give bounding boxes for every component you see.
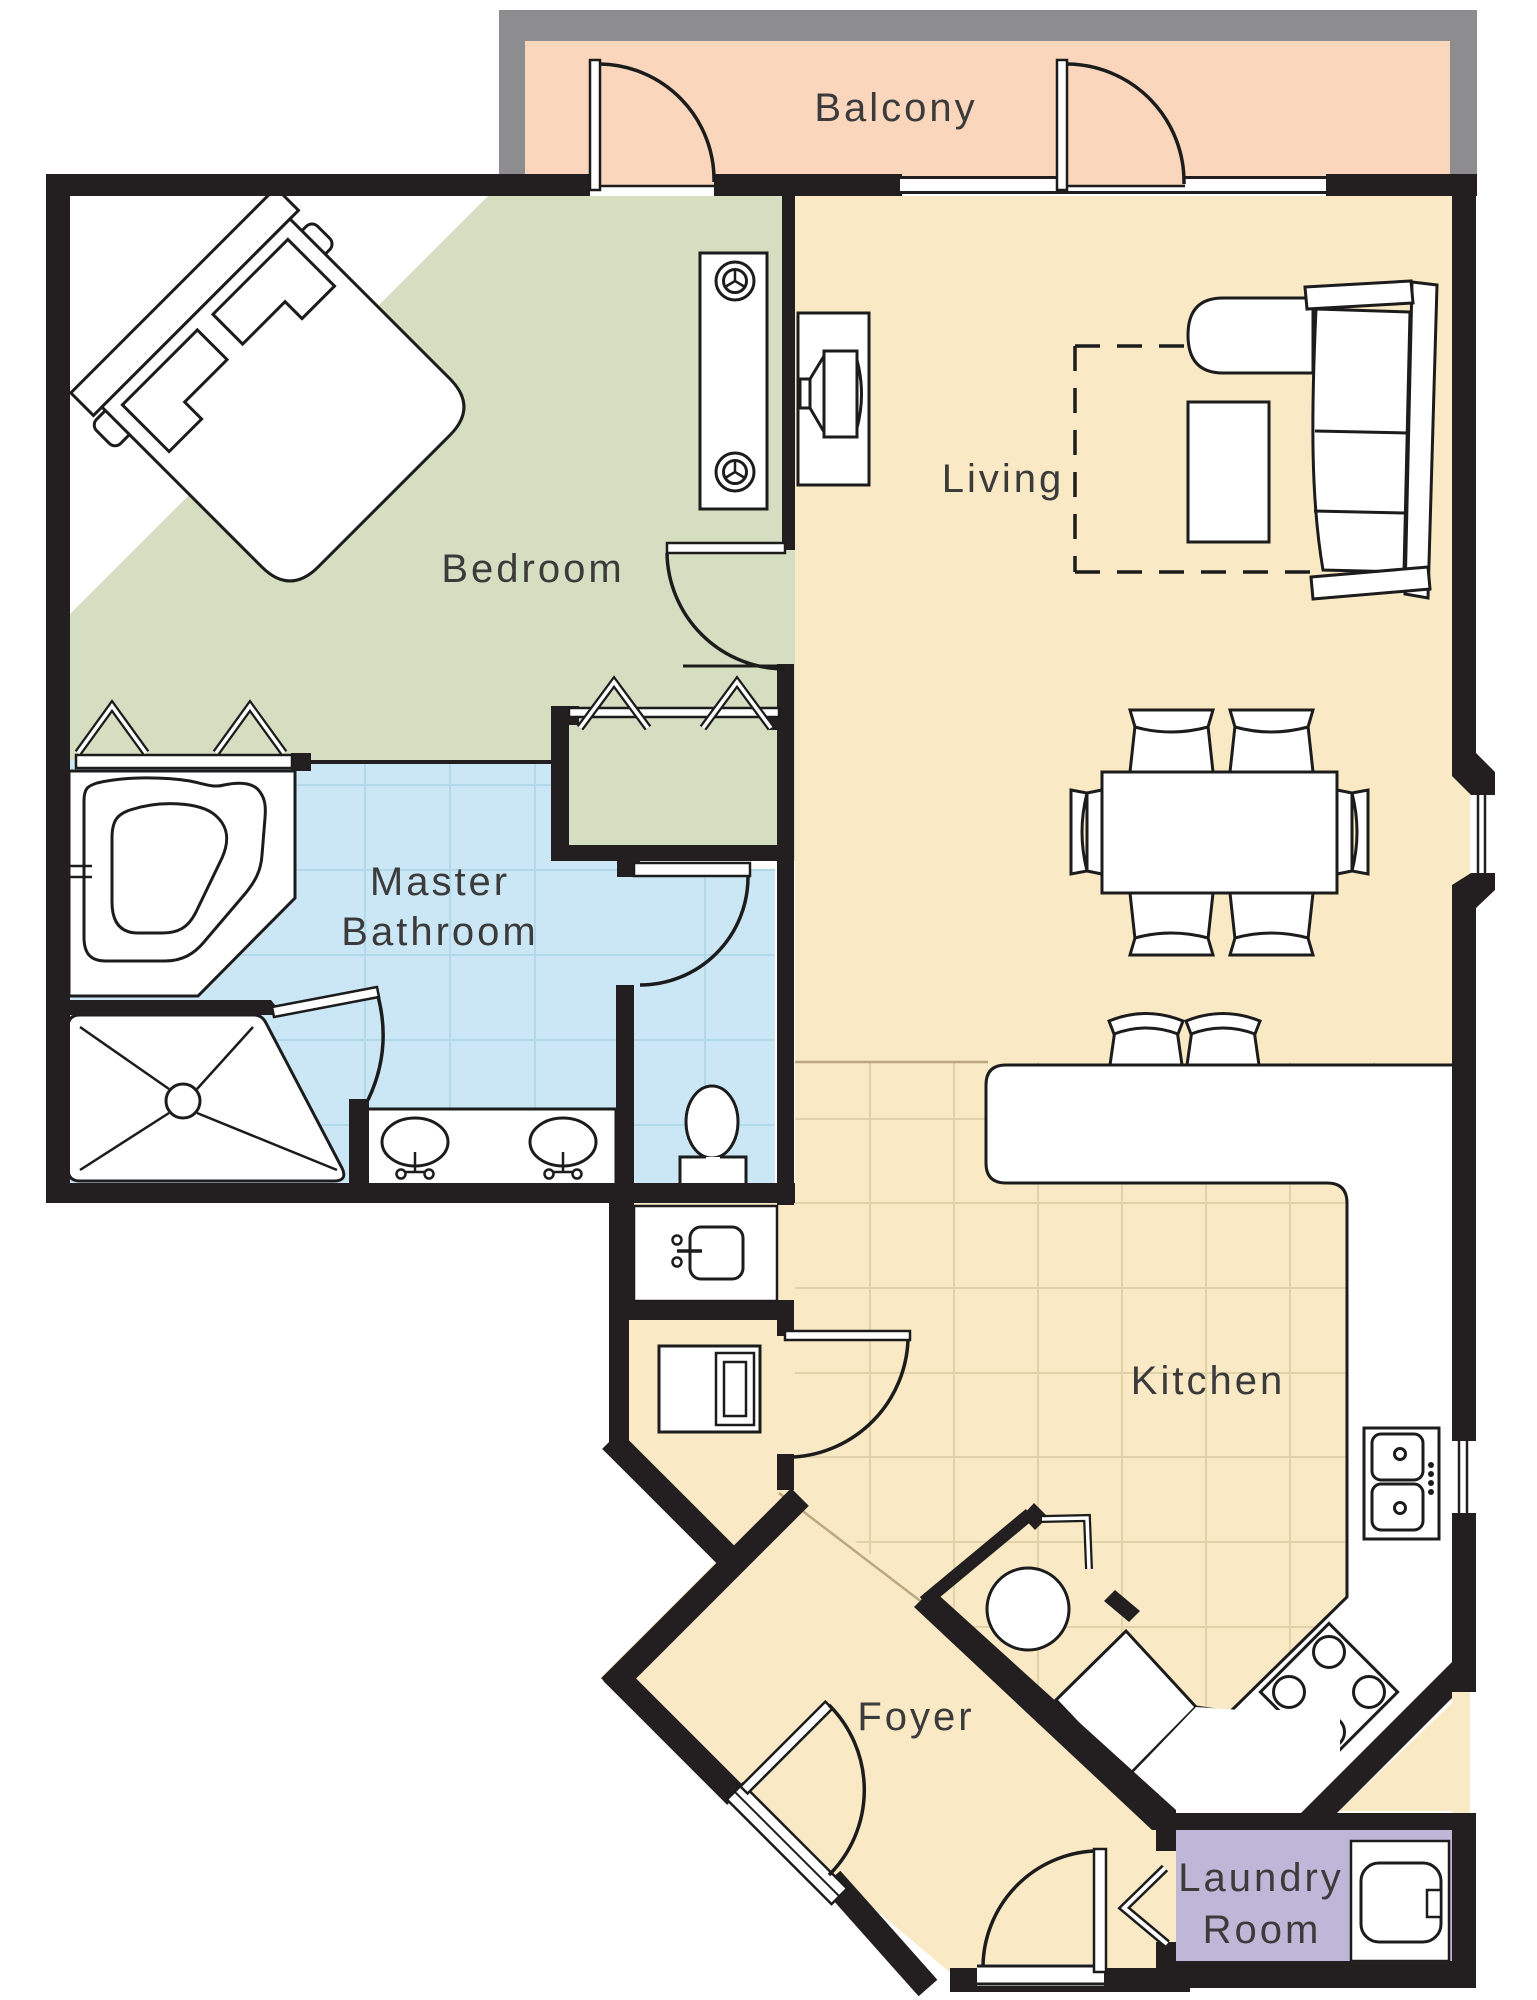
svg-text:Bathroom: Bathroom <box>341 910 538 954</box>
svg-text:Kitchen: Kitchen <box>1131 1359 1285 1403</box>
svg-text:Bedroom: Bedroom <box>441 547 624 591</box>
svg-text:Foyer: Foyer <box>857 1695 974 1739</box>
svg-text:Master: Master <box>370 860 510 904</box>
svg-text:Living: Living <box>942 457 1065 501</box>
svg-text:Room: Room <box>1203 1908 1322 1952</box>
svg-text:Balcony: Balcony <box>814 86 977 130</box>
svg-text:Laundry: Laundry <box>1178 1856 1344 1900</box>
